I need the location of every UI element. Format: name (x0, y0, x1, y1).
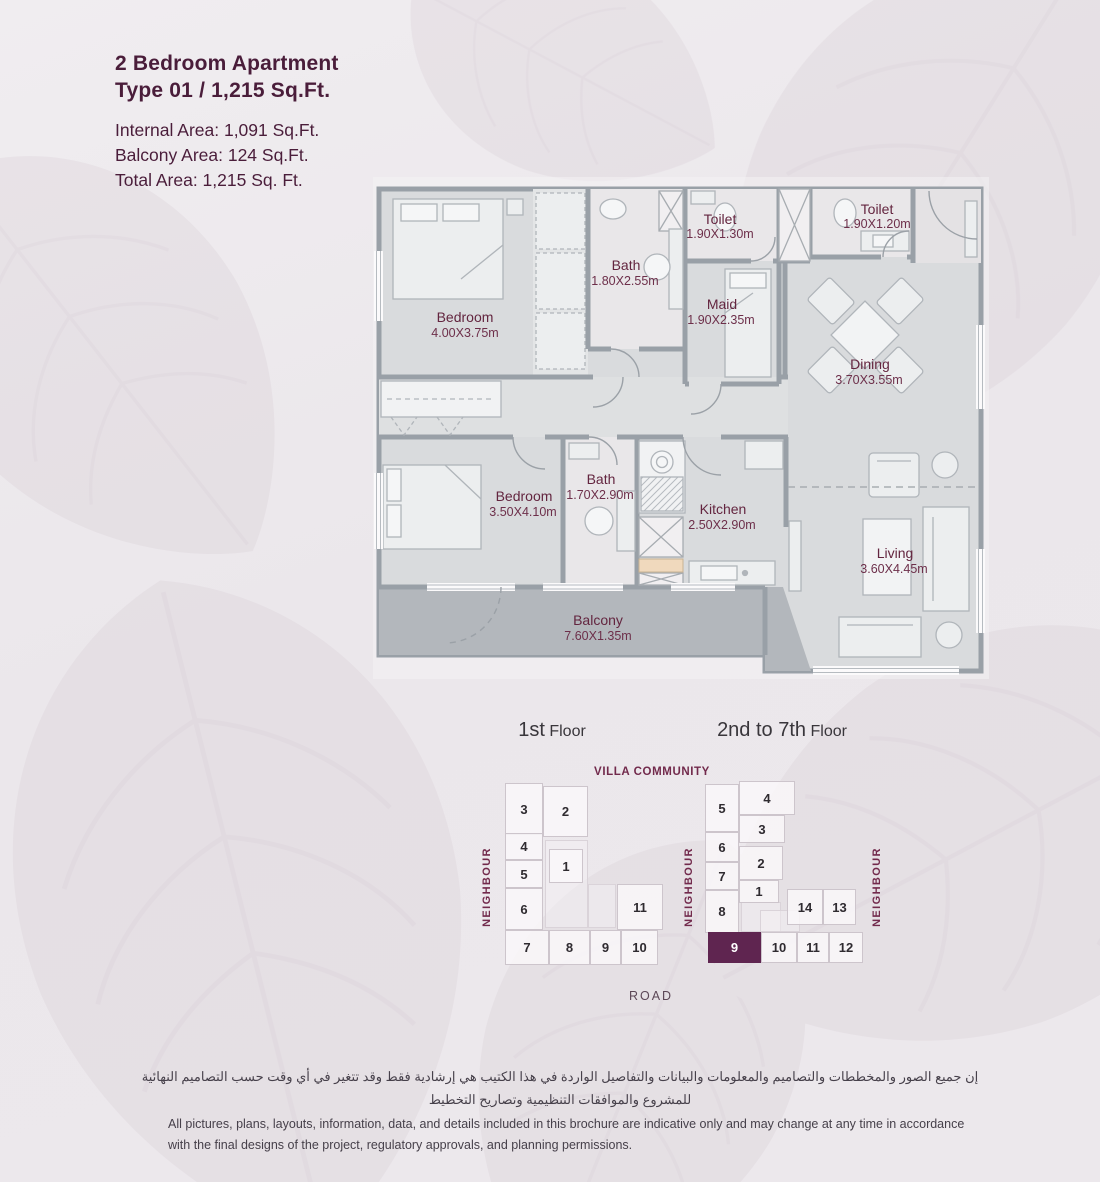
room-dims-bath-1: 1.80X2.55m (591, 274, 658, 288)
entry-closet-icon (965, 201, 977, 257)
unit-cell-f1-9: 9 (590, 930, 621, 965)
unit-cell-f2-9-highlighted: 9 (708, 932, 761, 963)
room-label-toilet-2: Toilet (861, 201, 894, 217)
room-label-bedroom-2: Bedroom (496, 488, 553, 504)
neighbour-label-left: NEIGHBOUR (481, 832, 493, 942)
wardrobe-icon-1 (536, 193, 585, 369)
unit-cell-f2-11: 11 (797, 932, 829, 963)
unit-cell-f2-10: 10 (761, 932, 797, 963)
unit-cell-f1-2: 2 (543, 786, 588, 837)
room-dims-toilet-2: 1.90X1.20m (843, 217, 910, 231)
room-dims-living: 3.60X4.45m (860, 562, 927, 576)
sink-icon (691, 191, 715, 204)
bed-icon-second (383, 465, 481, 549)
disclaimer-arabic: إن جميع الصور والمخططات والتصاميم والمعل… (130, 1066, 990, 1112)
room-dims-maid: 1.90X2.35m (687, 313, 754, 327)
unit-cell-f2-1: 1 (739, 880, 779, 903)
room-dims-dining: 3.70X3.55m (835, 373, 902, 387)
total-area: Total Area: 1,215 Sq. Ft. (115, 168, 339, 193)
unit-cell-f1-6: 6 (505, 888, 543, 930)
room-label-bedroom-1: Bedroom (437, 309, 494, 325)
unit-cell-f1-1: 1 (549, 849, 583, 883)
first-floor-heading: 1st Floor (472, 719, 632, 742)
unit-cell-f1-4: 4 (505, 833, 543, 860)
unit-cell-f2-14: 14 (787, 889, 823, 925)
unit-cell-f1-5: 5 (505, 860, 543, 888)
unit-cell-f1-8: 8 (549, 930, 590, 965)
unit-cell-f2-7: 7 (705, 862, 739, 890)
unit-cell-f1-3: 3 (505, 783, 543, 835)
room-label-dining: Dining (850, 356, 890, 372)
sink-icon (585, 507, 613, 535)
bed-icon-master (393, 199, 523, 299)
room-label-bath-1: Bath (612, 257, 641, 273)
page-title-line1: 2 Bedroom Apartment (115, 50, 339, 77)
room-dims-kitchen: 2.50X2.90m (688, 518, 755, 532)
neighbour-label-middle: NEIGHBOUR (683, 832, 695, 942)
room-label-maid: Maid (707, 296, 737, 312)
balcony-area: Balcony Area: 124 Sq.Ft. (115, 143, 339, 168)
page-title-line2: Type 01 / 1,215 Sq.Ft. (115, 77, 339, 104)
key-plan-footprint (588, 884, 616, 928)
disclaimer-english: All pictures, plans, layouts, informatio… (168, 1114, 983, 1157)
unit-cell-f1-7: 7 (505, 930, 549, 965)
brochure-page: 2 Bedroom Apartment Type 01 / 1,215 Sq.F… (0, 0, 1100, 1182)
room-dims-toilet-1: 1.90X1.30m (686, 227, 753, 241)
unit-cell-f2-3: 3 (739, 815, 785, 843)
pantry-shelf (639, 559, 683, 572)
unit-cell-f2-2: 2 (739, 846, 783, 880)
unit-cell-f2-4: 4 (739, 781, 795, 815)
cistern-icon (569, 443, 599, 459)
unit-cell-f2-13: 13 (823, 889, 856, 925)
balcony-floor (379, 587, 765, 655)
room-label-living: Living (877, 545, 914, 561)
internal-area: Internal Area: 1,091 Sq.Ft. (115, 118, 339, 143)
neighbour-label-right: NEIGHBOUR (871, 832, 883, 942)
second-floor-heading: 2nd to 7th Floor (682, 719, 882, 742)
room-label-toilet-1: Toilet (704, 211, 737, 227)
road-label: ROAD (601, 989, 701, 1003)
room-dims-bedroom-2: 3.50X4.10m (489, 505, 556, 519)
unit-cell-f2-8: 8 (705, 890, 739, 933)
room-label-bath-2: Bath (587, 471, 616, 487)
unit-cell-f2-12: 12 (829, 932, 863, 963)
unit-cell-f1-10: 10 (621, 930, 658, 965)
title-block: 2 Bedroom Apartment Type 01 / 1,215 Sq.F… (115, 50, 339, 193)
room-dims-bedroom-1: 4.00X3.75m (431, 326, 498, 340)
unit-cell-f2-6: 6 (705, 832, 739, 862)
floor-plan: Bedroom 4.00X3.75m Bath 1.80X2.55m Toile… (373, 173, 989, 679)
room-label-kitchen: Kitchen (700, 501, 747, 517)
bath-counter-icon (669, 229, 683, 309)
room-dims-bath-2: 1.70X2.90m (566, 488, 633, 502)
room-dims-balcony: 7.60X1.35m (564, 629, 631, 643)
toilet-fixture-icon (600, 199, 626, 219)
room-label-balcony: Balcony (573, 612, 623, 628)
unit-cell-f2-5: 5 (705, 784, 739, 832)
villa-community-label: VILLA COMMUNITY (577, 766, 727, 778)
unit-cell-f1-11: 11 (617, 884, 663, 930)
